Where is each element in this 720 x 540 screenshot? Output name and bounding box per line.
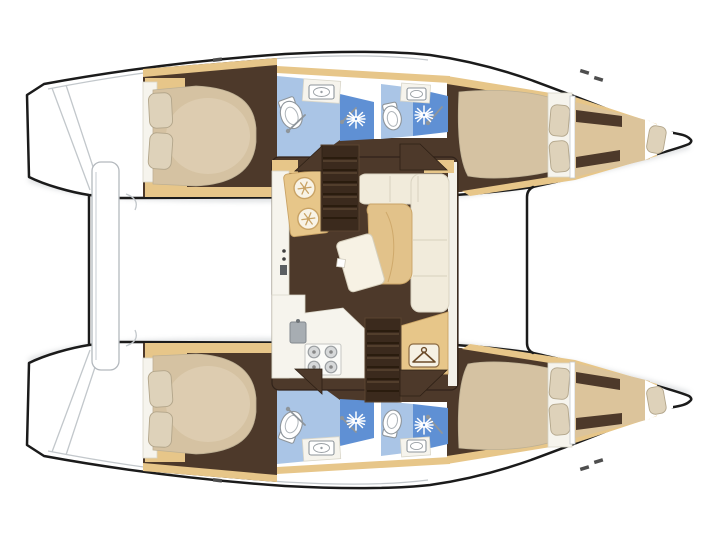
sofa-side-cushions (411, 174, 449, 312)
floor-plan-page (0, 0, 720, 540)
port-companionway-stairs (321, 145, 359, 231)
starboard-companionway-stairs (365, 318, 401, 402)
galley-sink-icon (290, 319, 306, 343)
forward-crossbeam (527, 187, 533, 353)
table-leg (336, 258, 345, 267)
floor-plan-canvas (0, 0, 720, 540)
hanger-icon (409, 344, 439, 367)
